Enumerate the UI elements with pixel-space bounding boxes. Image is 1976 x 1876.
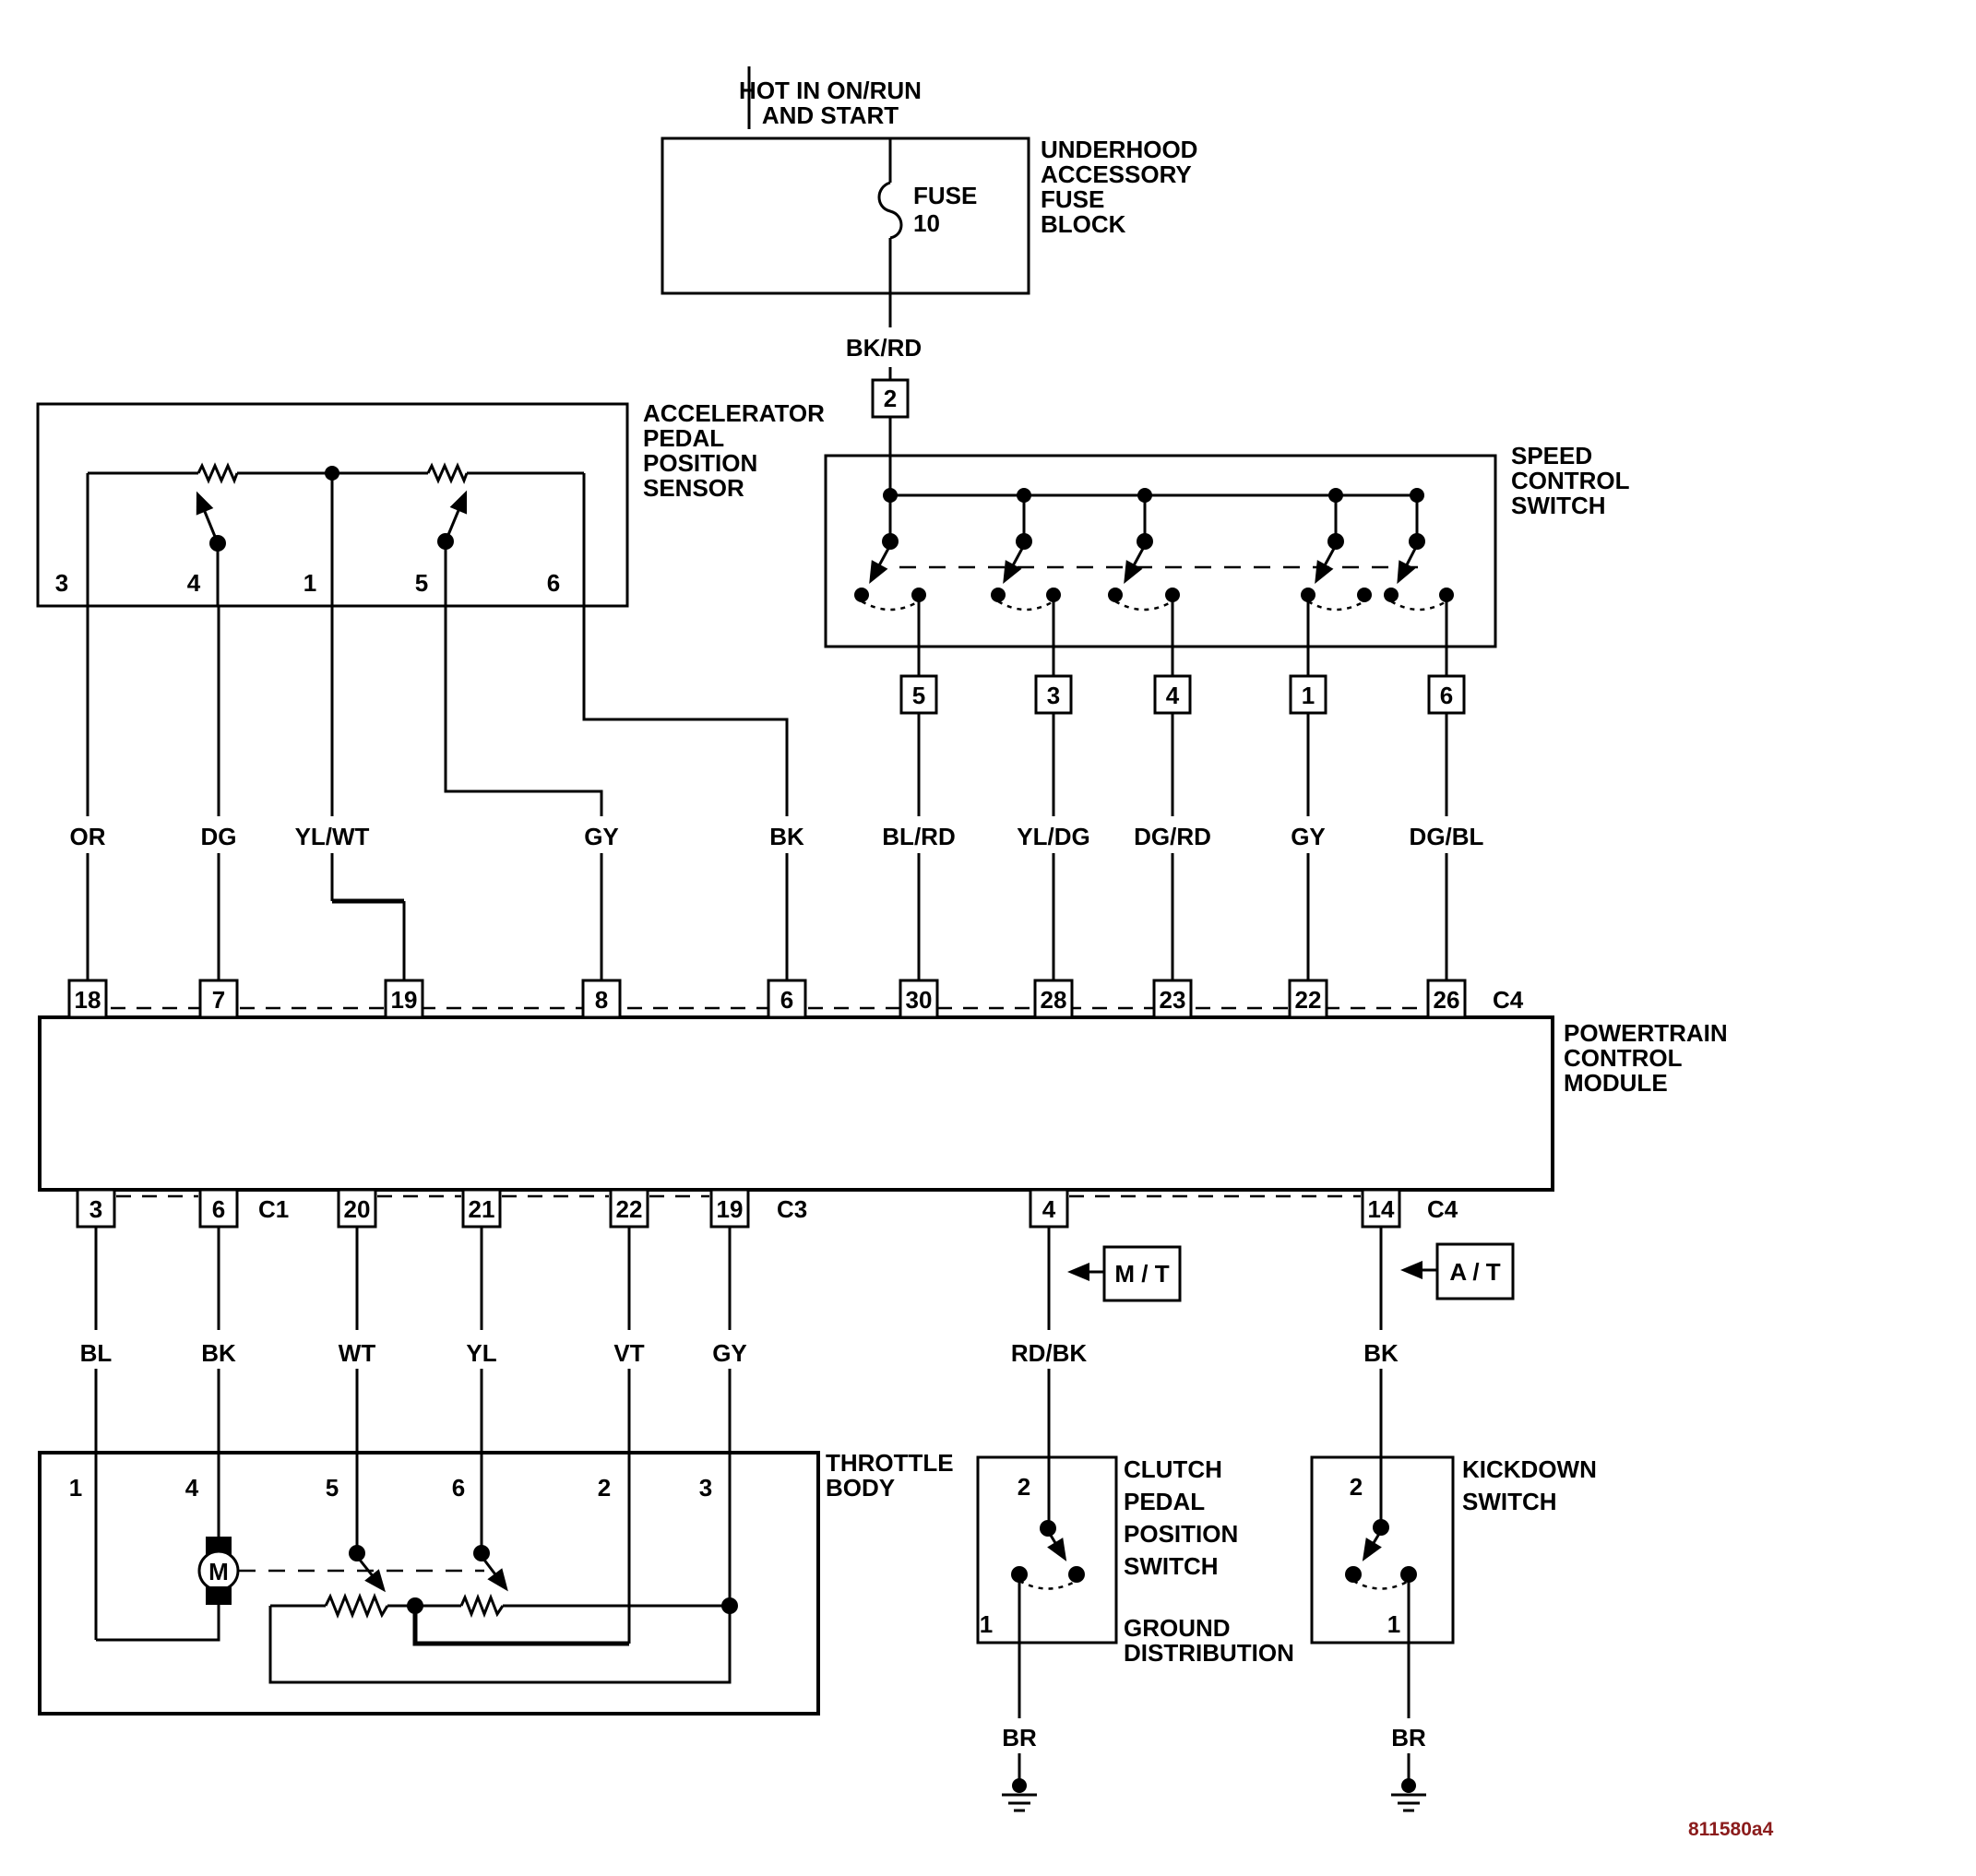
accelerator-sensor-name-line4: SENSOR [643,474,744,502]
power-feed-label-line2: AND START [762,101,899,129]
clutch-contact-arc [1019,1581,1077,1589]
motor-brush-bottom [206,1586,232,1605]
clutch-lever [1050,1534,1063,1555]
throttle-pin-1: 1 [69,1474,82,1502]
throttle-pin-6: 6 [452,1474,465,1502]
contact-dot [854,588,869,602]
throttle-resistor-1 [326,1597,387,1615]
contact-arc-4 [1308,601,1364,610]
pcm-connector-c1: C1 [258,1195,289,1223]
motor-return-wire [96,1453,219,1640]
clutch-name-line2: PEDAL [1124,1488,1205,1515]
wire-bk-top [584,606,787,980]
speed-pin-1: 1 [1302,682,1315,709]
clutch-name-line3: POSITION [1124,1520,1238,1548]
throttle-pin-4: 4 [185,1474,199,1502]
sensor-resistor-1 [198,466,237,481]
contact-arc-2 [998,601,1053,610]
contact-dot [1108,588,1123,602]
wire-label-rdbk: RD/BK [1011,1339,1088,1367]
pcm-pin-19: 19 [391,986,418,1014]
pcm-pin-7: 7 [212,986,225,1014]
throttle-resistor-2 [461,1597,503,1614]
throttle-pivot-1 [349,1545,365,1561]
clutch-contact-left [1011,1566,1028,1583]
kickdown-pivot [1373,1519,1389,1536]
pcm-top-connector-label: C4 [1493,986,1524,1014]
pcm-name-line3: MODULE [1564,1069,1668,1097]
fuse-block-name-line3: FUSE [1041,185,1104,213]
sensor-pin-3: 3 [55,569,68,597]
pcm-pin-b21: 21 [469,1195,495,1223]
kickdown-name-line2: SWITCH [1462,1488,1557,1515]
motor-label: M [208,1558,229,1585]
lever-arrow-5 [1400,545,1417,577]
kickdown-ground-dot [1401,1778,1416,1793]
speed-switch-box [826,456,1495,647]
clutch-ground-wire-label: BR [1002,1724,1037,1751]
wire-label-gy3: GY [712,1339,747,1367]
contact-dot [991,588,1006,602]
speed-pin-3: 3 [1047,682,1060,709]
wire-label-gy: GY [584,823,619,850]
power-feed-label-line1: HOT IN ON/RUN [739,77,922,104]
mt-tag-label: M / T [1114,1260,1169,1288]
wiring-diagram-page: HOT IN ON/RUN AND START FUSE 10 UNDERHOO… [0,0,1976,1876]
clutch-ground-symbol [1002,1795,1037,1811]
clutch-switch-box [978,1457,1116,1643]
pcm-pin-b6: 6 [212,1195,225,1223]
speed-pin-4: 4 [1166,682,1180,709]
fuse-block-name-line4: BLOCK [1041,210,1126,238]
contact-dot [1357,588,1372,602]
pcm-pin-b20: 20 [344,1195,371,1223]
kickdown-ground-symbol [1391,1795,1426,1811]
clutch-name-line1: CLUTCH [1124,1455,1222,1483]
speed-switch-name-line2: CONTROL [1511,467,1630,494]
contact-arc-5 [1391,601,1446,610]
speed-switch-name-line1: SPEED [1511,442,1592,469]
kickdown-contact-left [1345,1566,1362,1583]
kickdown-name-line1: KICKDOWN [1462,1455,1597,1483]
speed-pin-6: 6 [1440,682,1453,709]
wire-label-bkrd: BK/RD [846,334,922,362]
kickdown-pin-1: 1 [1387,1610,1400,1638]
pcm-pin-26: 26 [1434,986,1460,1014]
pcm-connector-c4: C4 [1427,1195,1458,1223]
wire-label-wt: WT [339,1339,376,1367]
wire-label-yldg: YL/DG [1017,823,1089,850]
pcm-pin-b4: 4 [1042,1195,1056,1223]
kickdown-lever [1366,1534,1379,1555]
throttle-body-name-line1: THROTTLE [826,1449,954,1477]
lever-arrow-3 [1127,545,1145,577]
sensor-pin-6: 6 [547,569,560,597]
fuse-output-pin: 2 [884,385,897,412]
pcm-pin-30: 30 [906,986,933,1014]
wire-gy-top [446,606,601,980]
pcm-pin-6: 6 [780,986,793,1014]
wire-label-or: OR [70,823,106,850]
fuse-block-name-line2: ACCESSORY [1041,160,1192,188]
pcm-pin-18: 18 [75,986,101,1014]
sensor-resistor-2 [428,466,467,481]
pcm-pin-b19: 19 [717,1195,744,1223]
pcm-pin-23: 23 [1160,986,1186,1014]
wire-label-blrd: BL/RD [882,823,955,850]
pcm-pin-28: 28 [1041,986,1067,1014]
speed-pin-5: 5 [912,682,925,709]
accelerator-sensor-name-line2: PEDAL [643,424,724,452]
contact-arc-3 [1115,601,1173,610]
wire-label-yl: YL [466,1339,496,1367]
clutch-pivot [1040,1520,1056,1537]
pcm-pin-22: 22 [1295,986,1322,1014]
clutch-pin-1: 1 [980,1610,993,1638]
sensor-junction-dot [325,466,339,481]
pcm-pin-b22: 22 [616,1195,643,1223]
throttle-pin-2: 2 [598,1474,611,1502]
sensor-pin-5: 5 [415,569,428,597]
wire-label-dgbl: DG/BL [1410,823,1484,850]
throttle-junction-branch [415,1606,629,1644]
clutch-contact-right [1068,1566,1085,1583]
accelerator-sensor-name-line3: POSITION [643,449,757,477]
contact-arc-1 [862,601,919,610]
clutch-pin-2: 2 [1018,1473,1030,1501]
pcm-pin-b14: 14 [1368,1195,1395,1223]
throttle-lever-1 [359,1559,381,1586]
diagram-code: 811580a4 [1688,1819,1774,1840]
kickdown-ground-wire-label: BR [1391,1724,1426,1751]
speed-switch-output-wires [919,600,1446,676]
accelerator-sensor-name-line1: ACCELERATOR [643,399,825,427]
ground-distribution-line1: GROUND [1124,1614,1231,1642]
wire-label-vt: VT [613,1339,644,1367]
lever-arrow-4 [1318,545,1336,577]
throttle-body-name-line2: BODY [826,1474,895,1502]
wire-label-ylwt: YL/WT [295,823,370,850]
lever-arrow-1 [873,545,890,577]
at-tag-label: A / T [1449,1258,1500,1286]
pcm-pin-b3: 3 [89,1195,102,1223]
throttle-lever-2 [483,1559,504,1585]
clutch-ground-dot [1012,1778,1027,1793]
pcm-connector-c3: C3 [777,1195,807,1223]
wire-label-bl: BL [80,1339,113,1367]
lever-arrow-2 [1006,545,1024,577]
wire-label-bk2: BK [201,1339,236,1367]
throttle-pin-3: 3 [699,1474,712,1502]
pcm-box [40,1017,1553,1190]
pcm-pin-8: 8 [595,986,608,1014]
pcm-name-line2: CONTROL [1564,1044,1683,1072]
wire-label-bk: BK [769,823,804,850]
clutch-name-line4: SWITCH [1124,1552,1219,1580]
fuse-name: FUSE [913,182,977,209]
fuse-block-name-line1: UNDERHOOD [1041,136,1197,163]
kickdown-pin-2: 2 [1350,1473,1363,1501]
ground-distribution-line2: DISTRIBUTION [1124,1639,1294,1667]
wire-label-gy2: GY [1291,823,1326,850]
pcm-name-line1: POWERTRAIN [1564,1019,1728,1047]
schematic-canvas: HOT IN ON/RUN AND START FUSE 10 UNDERHOO… [0,0,1976,1876]
wire-label-bk3: BK [1363,1339,1399,1367]
sensor-rail [88,473,584,606]
wire-label-dgrd: DG/RD [1134,823,1211,850]
sensor-pin-4: 4 [187,569,201,597]
throttle-pin-5: 5 [326,1474,339,1502]
fuse-symbol [879,183,901,238]
kickdown-contact-right [1400,1566,1417,1583]
speed-switch-name-line3: SWITCH [1511,492,1606,519]
sensor-pin-1: 1 [304,569,316,597]
fuse-block-box [662,138,1029,293]
fuse-number: 10 [913,209,940,237]
wire-label-dg: DG [201,823,237,850]
kickdown-contact-arc [1353,1581,1409,1589]
sensor-wiper2-arrow [446,497,464,541]
throttle-pivot-2 [473,1545,490,1561]
sensor-wiper1-arrow [199,498,218,543]
throttle-gy-loop [270,1453,730,1682]
contact-dot [1384,588,1399,602]
